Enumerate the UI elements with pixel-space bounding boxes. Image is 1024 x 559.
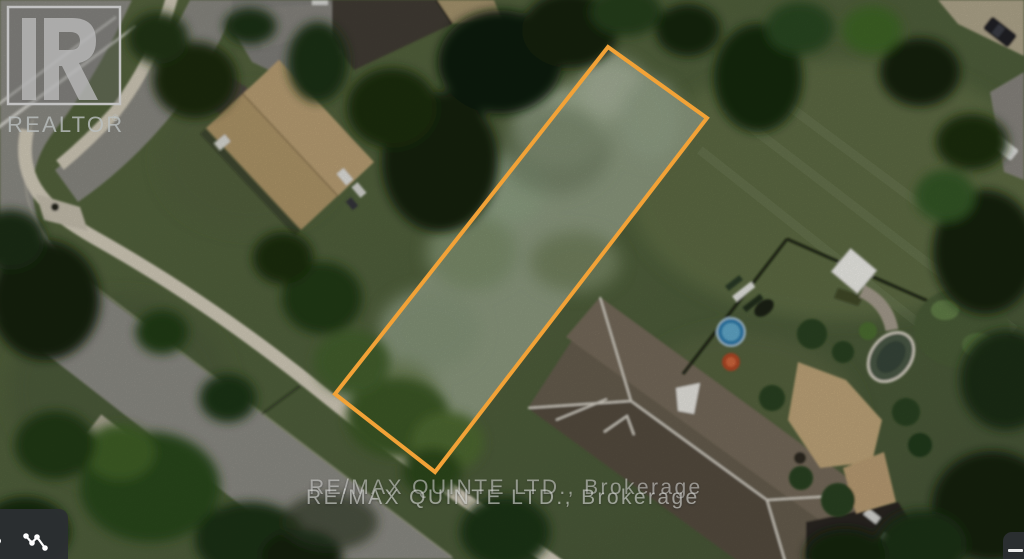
aerial-listing-photo: REALTOR ® RE/MAX QUINTE LTD., Brokerage … — [0, 0, 1024, 559]
brokerage-watermark-line-2: RE/MAX QUINTE LTD., Brokerage — [306, 486, 700, 510]
minus-dash-icon — [1008, 549, 1023, 552]
route-tool-button[interactable] — [0, 509, 68, 559]
collapse-tool-button[interactable] — [1003, 532, 1024, 559]
route-polyline-icon — [0, 509, 68, 559]
